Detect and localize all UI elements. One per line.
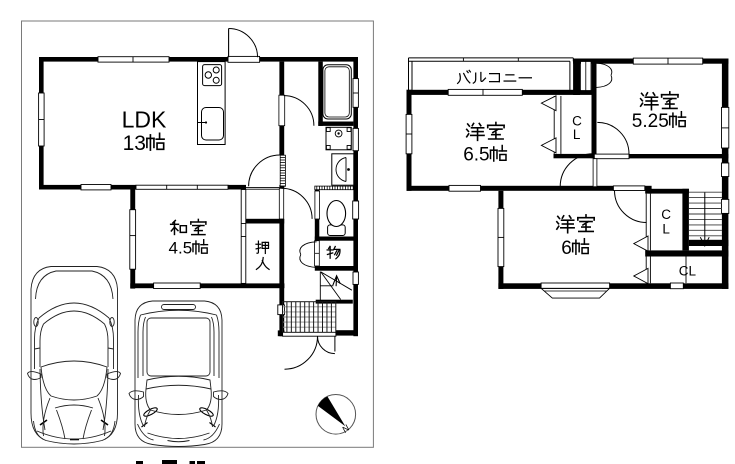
svg-text:LDK: LDK bbox=[122, 107, 167, 133]
svg-text:4.5: 4.5 bbox=[169, 238, 193, 257]
svg-text:L: L bbox=[573, 127, 581, 142]
svg-text:6: 6 bbox=[561, 238, 572, 259]
svg-text:CL: CL bbox=[679, 263, 697, 278]
svg-text:5.25: 5.25 bbox=[632, 111, 669, 132]
svg-text:L: L bbox=[662, 222, 670, 237]
svg-text:13: 13 bbox=[123, 132, 146, 155]
svg-text:C: C bbox=[661, 207, 671, 222]
svg-text:6.5: 6.5 bbox=[463, 145, 489, 166]
